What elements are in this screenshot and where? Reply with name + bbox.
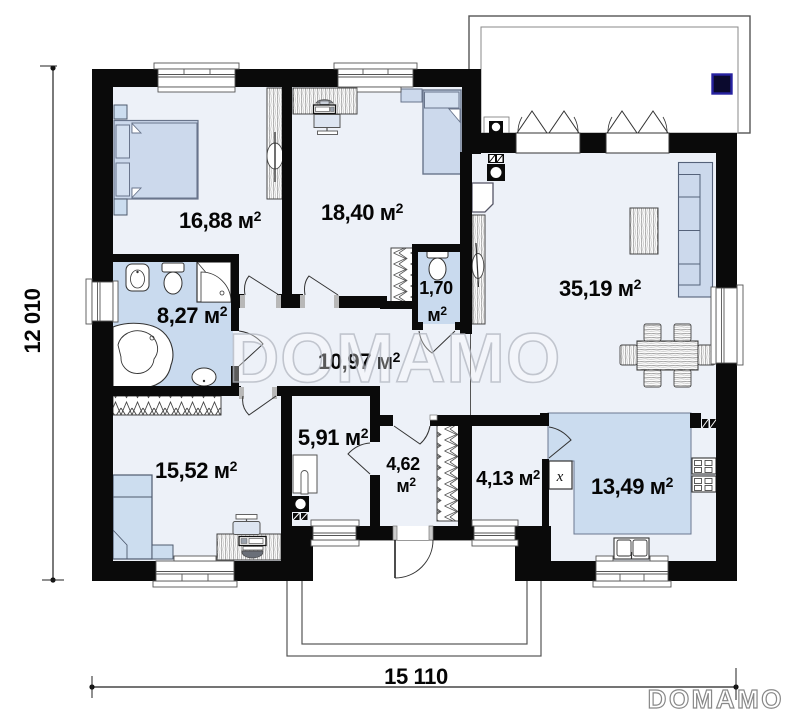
svg-text:5,91 м2: 5,91 м2 — [298, 425, 369, 450]
svg-text:1,70: 1,70 — [419, 278, 453, 298]
svg-text:35,19 м2: 35,19 м2 — [559, 276, 642, 301]
svg-text:12 010: 12 010 — [20, 288, 45, 353]
svg-text:15 110: 15 110 — [384, 664, 448, 689]
svg-text:4,13 м2: 4,13 м2 — [476, 467, 540, 490]
svg-text:16,88 м2: 16,88 м2 — [179, 208, 262, 233]
svg-text:8,27 м2: 8,27 м2 — [157, 303, 228, 328]
svg-text:13,49 м2: 13,49 м2 — [591, 474, 674, 499]
svg-text:x: x — [556, 469, 564, 485]
svg-text:18,40 м2: 18,40 м2 — [321, 200, 404, 225]
svg-text:DOMAMO: DOMAMO — [648, 684, 784, 714]
svg-text:15,52 м2: 15,52 м2 — [155, 458, 238, 483]
svg-text:4,62: 4,62 — [386, 454, 420, 474]
svg-text:DOMAMO: DOMAMO — [229, 319, 562, 397]
